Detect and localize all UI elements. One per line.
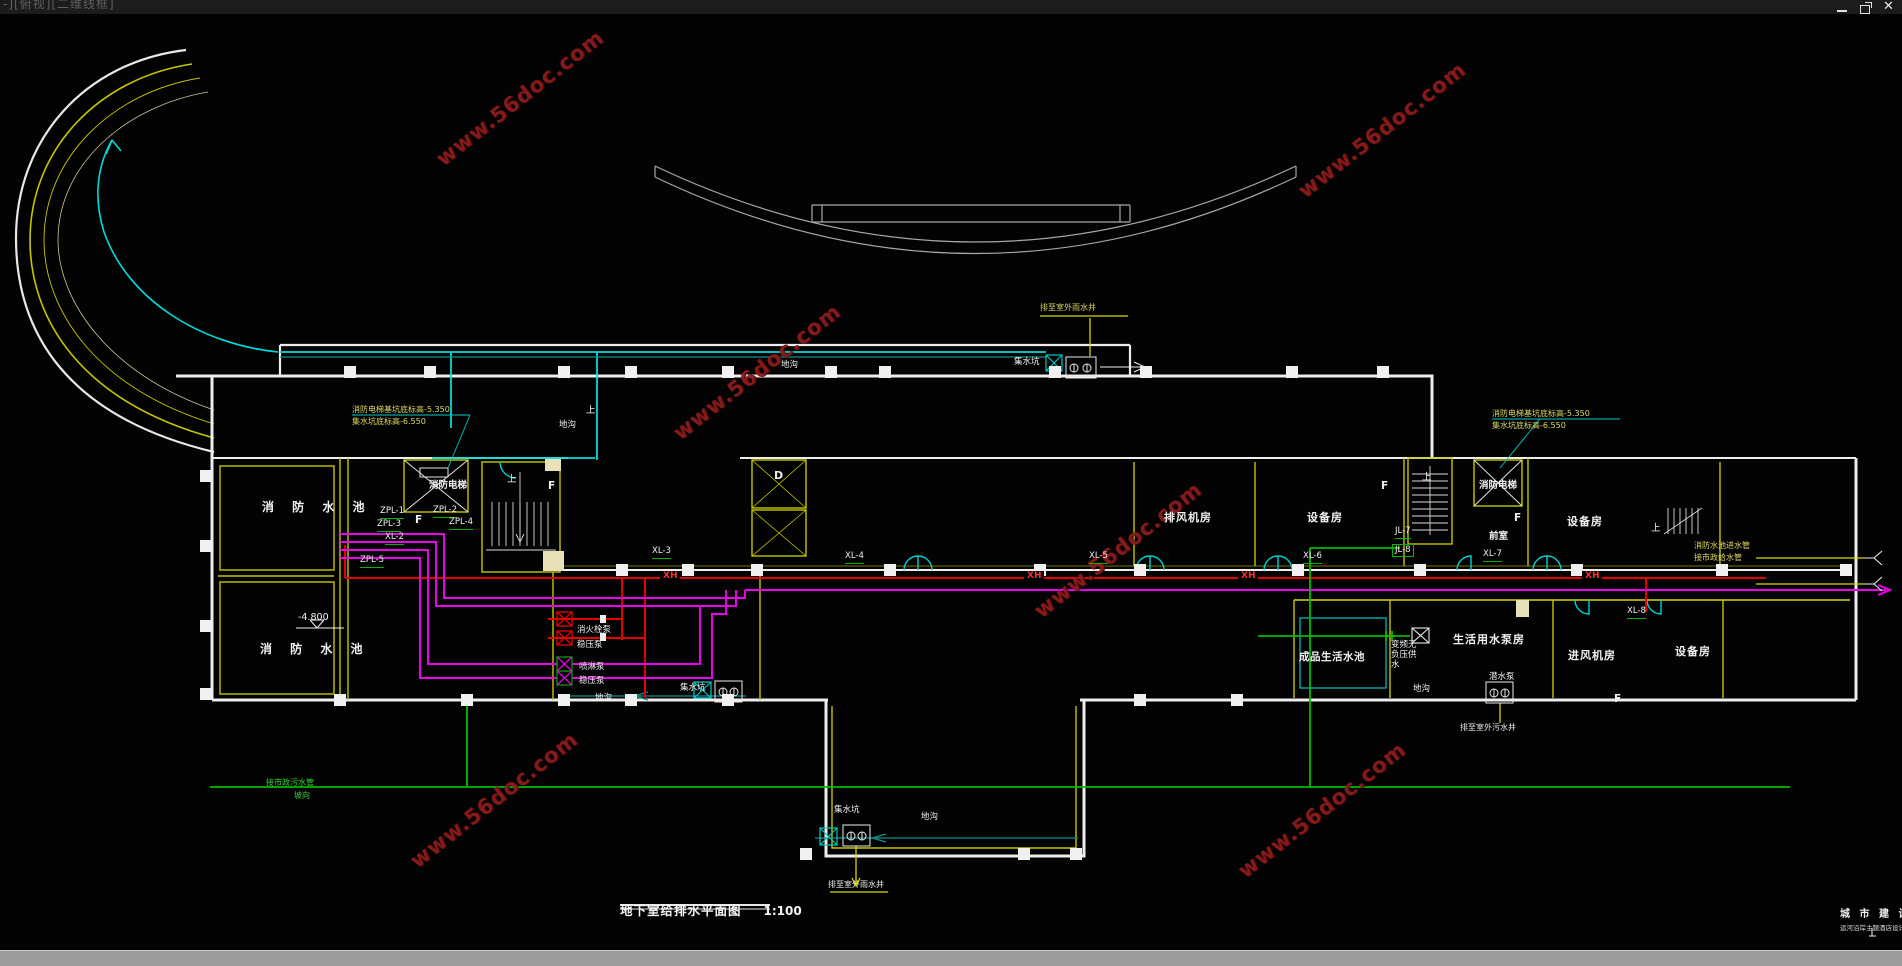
annotation-green: 坡向	[294, 791, 310, 801]
equipment-label: 消火栓泵	[577, 625, 611, 635]
annotation-white: 排至室外雨水井	[828, 880, 884, 890]
trench-label: 集水坑	[680, 683, 706, 694]
title-block-corner: 城 市 建 设 运河沿岸主题酒店设计大	[1840, 905, 1902, 932]
riser-label: JL-7	[1395, 526, 1411, 539]
trench-label: 地沟	[781, 360, 798, 371]
riser-label: ZPL-3	[377, 519, 401, 532]
room-label: 设备房	[1675, 645, 1711, 659]
room-label: 生活用水泵房	[1453, 633, 1525, 647]
room-label: 消 防 水 池	[262, 500, 372, 516]
trench-label: 地沟	[1413, 684, 1430, 695]
equipment-label: 潜水泵	[1489, 672, 1515, 682]
elevator-label: D	[774, 469, 783, 483]
room-label: 成品生活水池	[1299, 651, 1365, 665]
fire-door-label: F	[1614, 693, 1621, 707]
fire-door-label: F	[1514, 512, 1521, 526]
riser-label: XL-6	[1303, 551, 1322, 564]
structural-columns	[200, 366, 1852, 860]
riser-label: ZPL-5	[360, 555, 384, 568]
room-label: 排风机房	[1164, 511, 1212, 525]
drawing-title: 地下室给排水平面图	[620, 900, 742, 919]
annotation-yellow: 消防水池进水管 接市政给水管	[1694, 540, 1750, 563]
room-label: 设备房	[1307, 511, 1343, 525]
annotation-leaders	[352, 415, 1620, 468]
stairs	[486, 466, 1702, 550]
trench-label: 地沟	[595, 693, 612, 704]
drawing-scale: 1:100	[764, 904, 802, 918]
elevation-label: -4.800	[298, 612, 329, 624]
restore-button[interactable]	[1859, 2, 1874, 14]
project-subtitle: 运河沿岸主题酒店设计大	[1840, 922, 1902, 932]
riser-label: JL-8	[1392, 544, 1414, 557]
riser-label: XL-7	[1483, 549, 1502, 562]
hydrant-main-marker: XH	[1024, 571, 1044, 583]
fire-door-label: F	[1381, 480, 1388, 494]
fire-door-label: F	[415, 514, 422, 528]
cad-drawing-canvas[interactable]: www.56doc.comwww.56doc.comwww.56doc.comw…	[0, 14, 1902, 950]
equipment-label: 喷淋泵	[579, 662, 605, 672]
annotation-white: 排至室外污水井	[1460, 723, 1516, 733]
floor-plan-linework	[0, 14, 1902, 950]
fire-elevator-shafts	[404, 460, 1522, 512]
riser-label: XL-8	[1627, 606, 1646, 619]
bottom-bar	[0, 950, 1902, 966]
room-label: 消 防 水 池	[260, 642, 370, 658]
close-button[interactable]: ✕	[1883, 2, 1898, 14]
annotation-yellow: 消防电梯基坑底标高-5.350 集水坑底标高-6.550	[352, 404, 450, 427]
annotation-yellow: 消防电梯基坑底标高-5.350 集水坑底标高-6.550	[1492, 408, 1590, 431]
close-icon: ✕	[1883, 0, 1894, 14]
trench-label: 集水坑	[1014, 357, 1040, 368]
riser-label: XL-4	[845, 551, 864, 564]
equipment-label: 变频无 负压供 水	[1391, 640, 1417, 671]
stair-up-label: 上	[586, 405, 596, 417]
window-controls: ✕	[1835, 2, 1898, 14]
stair-up-label: 上	[1422, 472, 1432, 484]
hydrant-main-marker: XH	[1582, 571, 1602, 583]
viewport-control-label[interactable]: -][俯视][二维线框]	[3, 0, 115, 12]
minimize-icon	[1837, 10, 1847, 12]
shaft-label: 前室	[1489, 531, 1508, 543]
cad-application-window: -][俯视][二维线框] ✕	[0, 0, 1902, 966]
shaft-label: 消防电梯	[1479, 480, 1517, 492]
driveway-ramp	[16, 50, 278, 452]
fire-door-label: F	[548, 480, 555, 494]
pump-units	[715, 357, 1513, 846]
trench-label: 地沟	[559, 420, 576, 431]
room-label: 设备房	[1567, 515, 1603, 529]
annotation-green: 接市政污水管	[266, 778, 314, 788]
upper-floor-outline	[655, 166, 1296, 254]
annotation-yellow: 排至室外雨水井	[1040, 302, 1096, 314]
equipment-label: 稳压泵	[579, 676, 605, 686]
riser-label: XL-5	[1089, 551, 1108, 564]
trench-label: 集水坑	[834, 805, 860, 816]
riser-label: ZPL-1	[380, 506, 404, 519]
project-name: 城 市 建 设	[1840, 905, 1902, 920]
drawing-title-block: 地下室给排水平面图1:100	[620, 900, 802, 919]
trench-label: 地沟	[921, 812, 938, 823]
riser-label: ZPL-4	[449, 517, 473, 530]
room-label: 进风机房	[1568, 649, 1616, 663]
minimize-button[interactable]	[1835, 2, 1850, 14]
riser-label: XL-3	[652, 546, 671, 559]
pipe-end-symbols	[296, 362, 1882, 936]
equipment-label: 稳压泵	[577, 640, 603, 650]
stair-up-label: 上	[1651, 523, 1661, 535]
hydrant-main-marker: XH	[1238, 571, 1258, 583]
hydrant-main-marker: XH	[660, 571, 680, 583]
stair-up-label: 上	[507, 474, 517, 486]
shaft-label: 消防电梯	[429, 480, 467, 492]
riser-label: XL-2	[385, 532, 404, 545]
